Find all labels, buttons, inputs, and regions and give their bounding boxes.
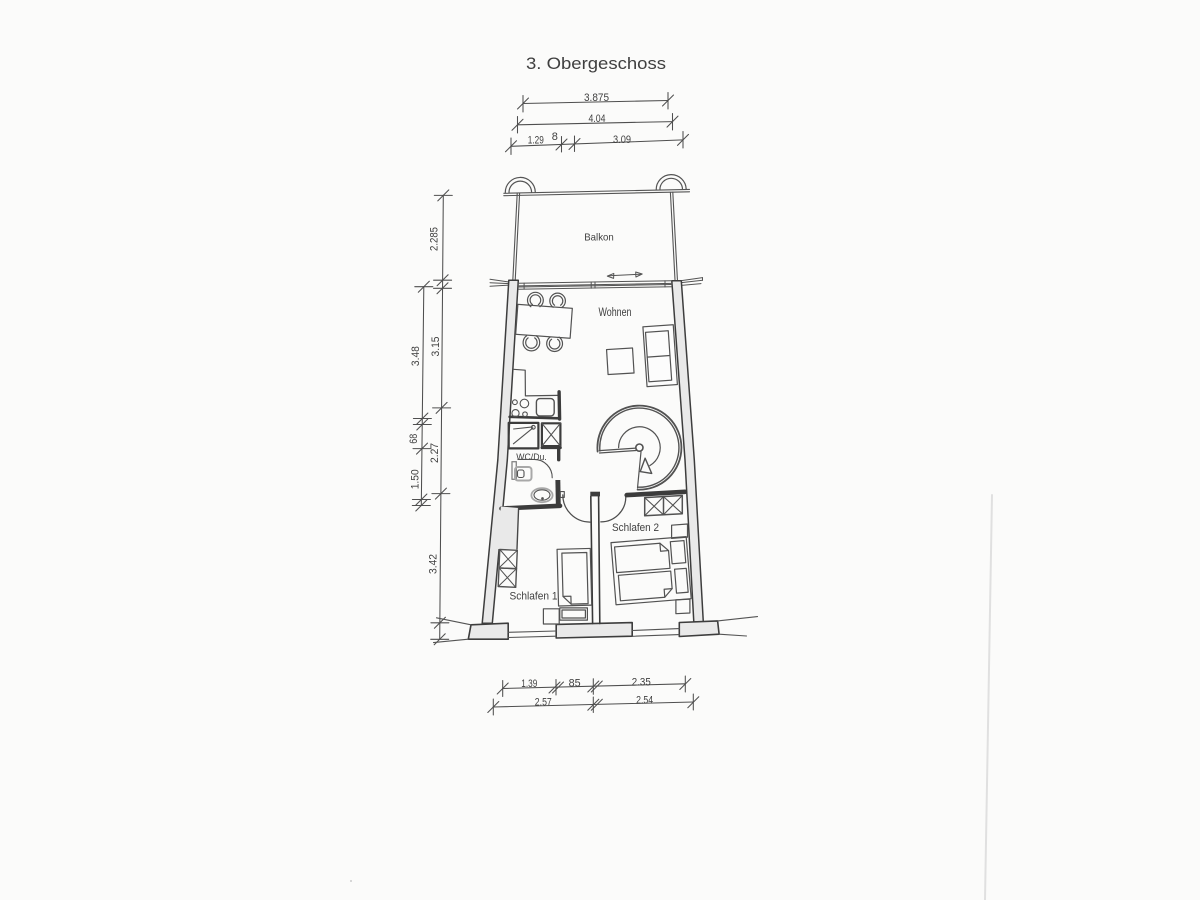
svg-text:3. Obergeschoss: 3. Obergeschoss xyxy=(526,54,666,73)
svg-text:3.09: 3.09 xyxy=(613,134,631,146)
svg-text:3.42: 3.42 xyxy=(428,554,440,574)
svg-text:1.29: 1.29 xyxy=(528,135,544,147)
svg-text:2.285: 2.285 xyxy=(429,227,441,251)
svg-text:8: 8 xyxy=(552,131,558,143)
svg-text:68: 68 xyxy=(408,434,420,444)
svg-text:Balkon: Balkon xyxy=(584,232,614,244)
svg-text:4.04: 4.04 xyxy=(589,113,606,125)
svg-text:2.54: 2.54 xyxy=(636,694,653,706)
svg-text:2.27: 2.27 xyxy=(429,443,441,463)
svg-text:2.35: 2.35 xyxy=(632,677,651,689)
svg-text:Schlafen 1: Schlafen 1 xyxy=(510,591,558,603)
svg-text:Wohnen: Wohnen xyxy=(599,307,632,319)
svg-text:85: 85 xyxy=(569,678,581,690)
svg-text:3.875: 3.875 xyxy=(584,92,609,104)
svg-text:3.15: 3.15 xyxy=(430,337,442,357)
svg-text:Schlafen 2: Schlafen 2 xyxy=(612,522,659,534)
svg-text:3.48: 3.48 xyxy=(410,346,422,366)
svg-text:2.57: 2.57 xyxy=(535,696,552,708)
svg-text:1.50: 1.50 xyxy=(410,469,422,489)
svg-text:1.39: 1.39 xyxy=(521,678,537,690)
